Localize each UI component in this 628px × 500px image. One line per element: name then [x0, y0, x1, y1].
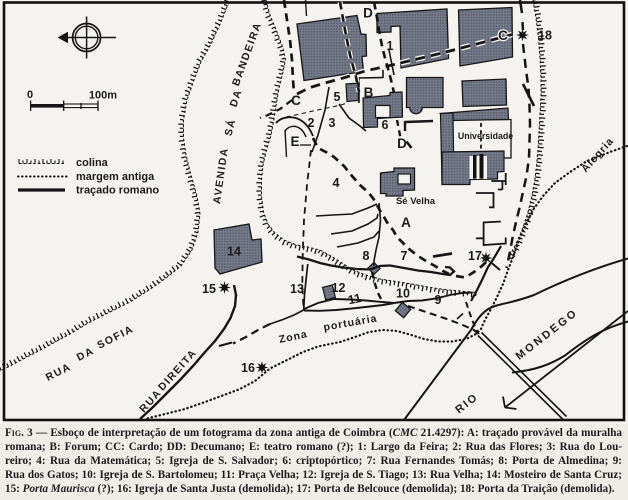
svg-text:6: 6 [382, 118, 389, 132]
svg-text:5: 5 [334, 90, 341, 104]
svg-text:15: 15 [202, 282, 216, 296]
svg-text:10: 10 [396, 287, 410, 301]
svg-text:B: B [364, 85, 374, 100]
svg-text:3: 3 [329, 116, 336, 130]
svg-text:4: 4 [333, 176, 340, 190]
svg-text:D: D [363, 6, 373, 21]
svg-text:A: A [401, 215, 411, 230]
svg-text:Universidade: Universidade [458, 131, 513, 141]
svg-text:C: C [291, 93, 301, 108]
svg-text:C: C [498, 28, 508, 43]
svg-text:13: 13 [290, 282, 304, 296]
svg-text:12: 12 [332, 281, 346, 295]
svg-text:margem antiga: margem antiga [76, 171, 155, 183]
svg-text:17: 17 [468, 249, 482, 263]
svg-text:Sé Velha: Sé Velha [396, 196, 436, 207]
svg-text:100m: 100m [89, 90, 117, 102]
svg-text:E: E [290, 134, 299, 149]
svg-text:D: D [397, 136, 407, 151]
svg-text:1: 1 [387, 39, 394, 53]
svg-text:7: 7 [401, 249, 408, 263]
svg-text:8: 8 [363, 249, 370, 263]
svg-text:16: 16 [241, 361, 255, 375]
svg-text:9: 9 [435, 293, 442, 307]
svg-text:0: 0 [27, 89, 33, 101]
svg-text:18: 18 [538, 29, 552, 43]
svg-text:traçado romano: traçado romano [76, 185, 159, 197]
svg-text:14: 14 [227, 245, 241, 259]
svg-text:colina: colina [76, 157, 109, 169]
svg-text:2: 2 [308, 116, 315, 130]
